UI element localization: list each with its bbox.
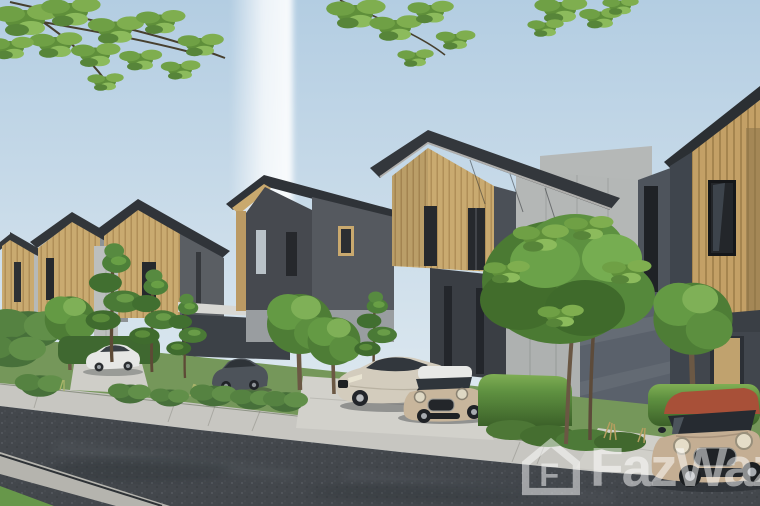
rendered-scene [0, 0, 760, 506]
property-photo: F FazWaz [0, 0, 760, 506]
hedge-block [478, 374, 572, 426]
